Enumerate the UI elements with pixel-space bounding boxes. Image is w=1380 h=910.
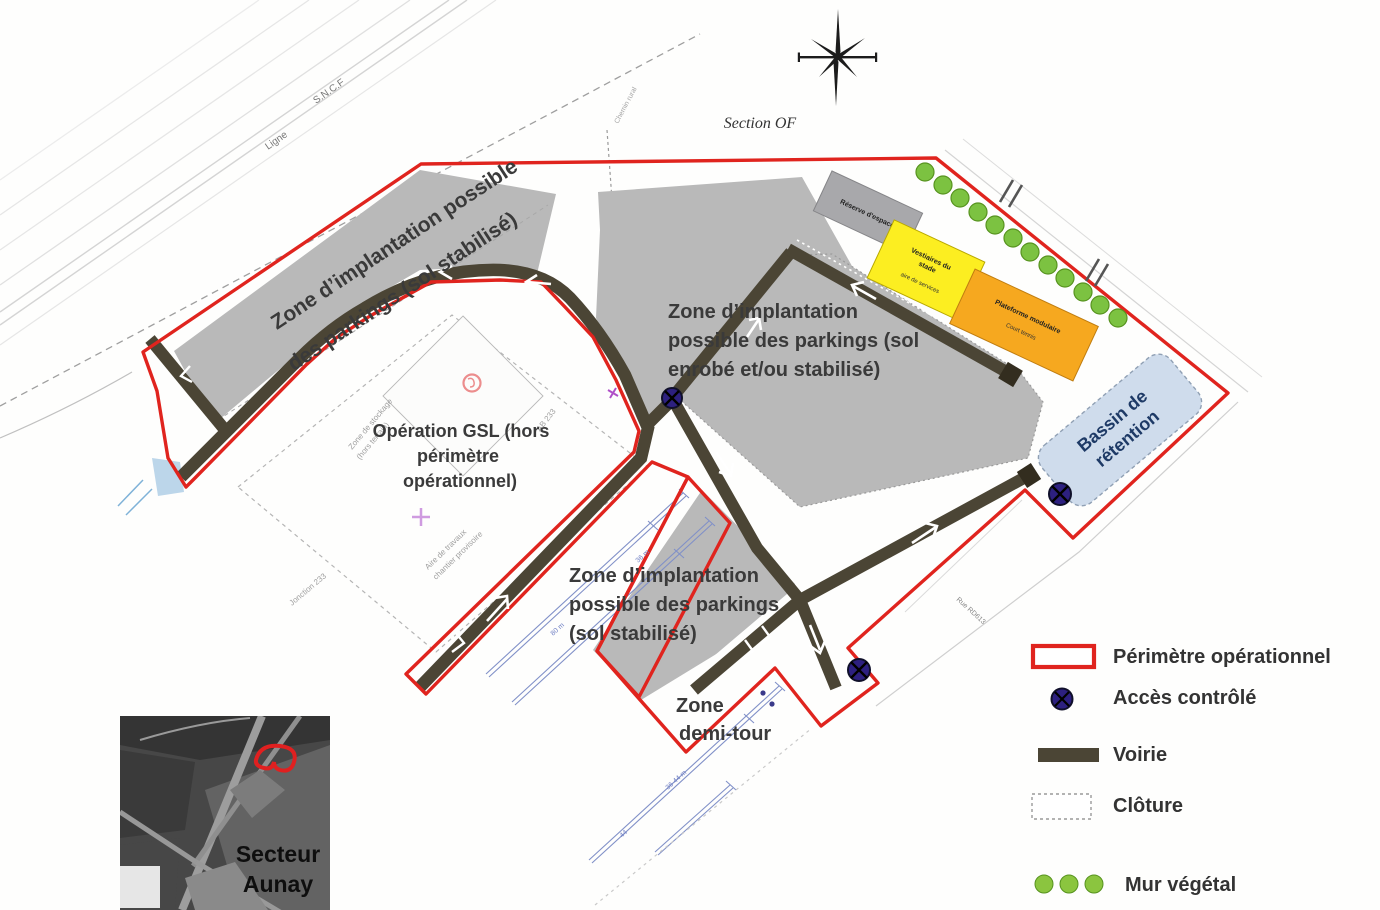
svg-text:opérationnel): opérationnel) [403,471,517,491]
svg-text:Périmètre opérationnel: Périmètre opérationnel [1113,646,1331,668]
svg-text:Accès contrôlé: Accès contrôlé [1113,687,1256,709]
svg-text:demi-tour: demi-tour [679,723,771,745]
svg-text:Mur végétal: Mur végétal [1125,874,1236,896]
svg-text:possible des parkings (sol: possible des parkings (sol [668,330,919,352]
svg-text:enrobé et/ou stabilisé): enrobé et/ou stabilisé) [668,359,880,381]
svg-text:Voirie: Voirie [1113,744,1167,766]
svg-text:Zone d’implantation: Zone d’implantation [569,565,759,587]
svg-text:(sol stabilisé): (sol stabilisé) [569,623,697,645]
svg-text:périmètre: périmètre [417,446,499,466]
svg-text:Clôture: Clôture [1113,795,1183,817]
svg-text:Secteur: Secteur [236,841,320,867]
svg-text:possible des parkings: possible des parkings [569,594,779,616]
svg-text:Section OF: Section OF [724,115,797,132]
svg-text:Zone d’implantation: Zone d’implantation [668,301,858,323]
svg-text:Opération GSL (hors: Opération GSL (hors [373,421,550,441]
svg-text:Aunay: Aunay [243,871,314,897]
svg-text:Zone: Zone [676,695,724,717]
